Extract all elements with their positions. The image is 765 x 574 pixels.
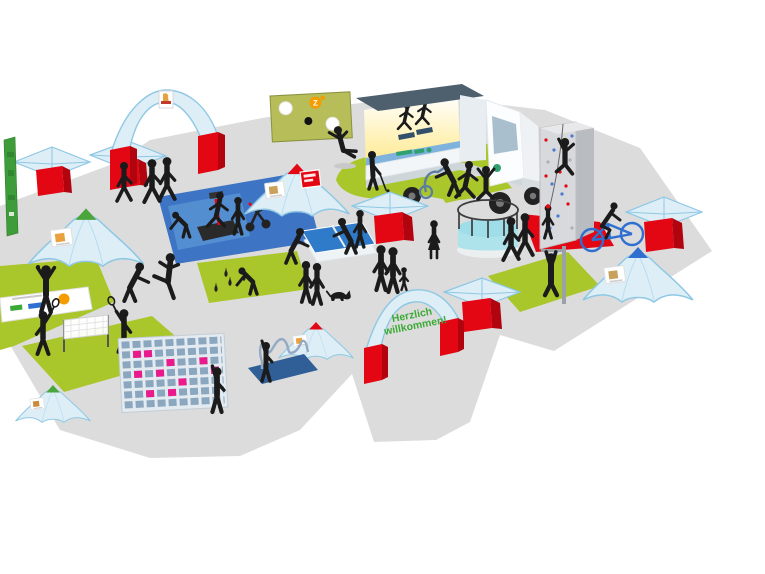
belayer-cap bbox=[546, 204, 550, 208]
ball bbox=[36, 265, 40, 269]
event-map-illustration: Z bbox=[0, 0, 765, 574]
target-grid-wall bbox=[118, 333, 228, 412]
scene-svg: Z bbox=[0, 0, 765, 574]
keeper-shadow bbox=[334, 163, 356, 169]
arch-crest-logo bbox=[159, 91, 173, 108]
dome-tent-center-red-poster bbox=[300, 170, 321, 188]
svg-text:Z: Z bbox=[313, 99, 318, 108]
